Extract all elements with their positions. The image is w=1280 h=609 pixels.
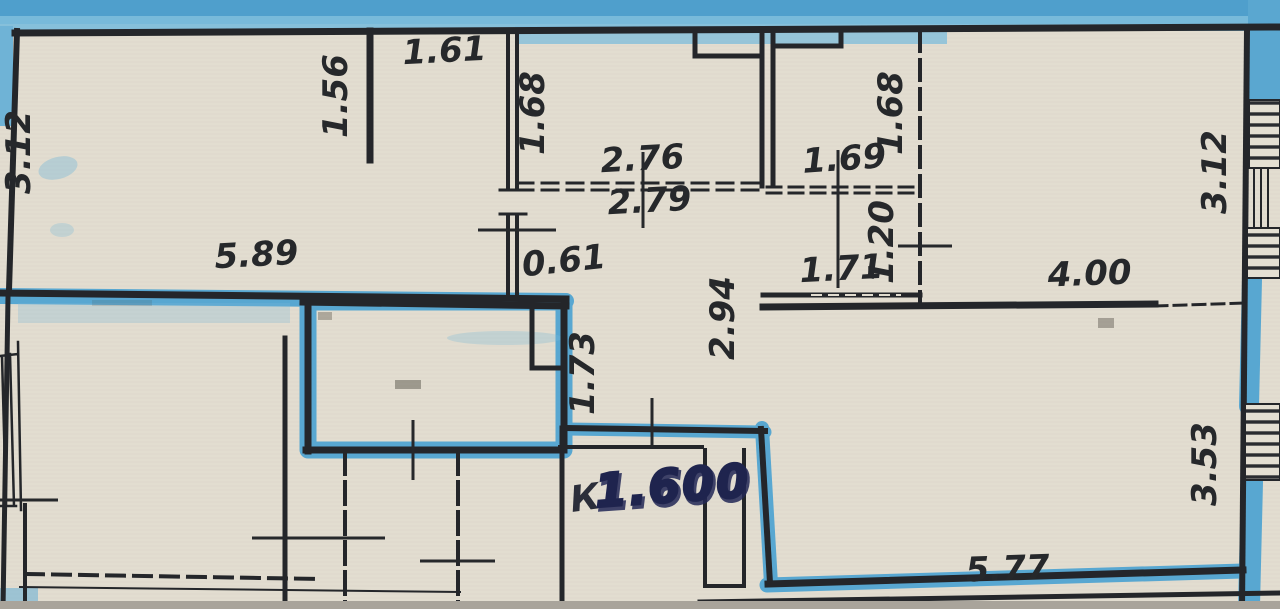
dim-closet-width: 1.61 xyxy=(401,29,487,73)
dim-top-left-height: 3.12 xyxy=(0,110,39,194)
stain-1 xyxy=(318,312,332,320)
highlight-smudge-3 xyxy=(447,331,563,345)
dim-closet-depth: 1.56 xyxy=(316,54,356,138)
highlight-right-bottom xyxy=(1249,482,1252,606)
dim-bottom-right-width: 5.77 xyxy=(965,548,1051,591)
stain-3 xyxy=(395,380,421,389)
dim-hall-left-height: 1.73 xyxy=(563,331,603,415)
dim-hall-height: 2.94 xyxy=(703,276,743,360)
dim-bedroom-height: 3.12 xyxy=(1195,130,1235,214)
floor-plan-drawing: 3.12 1.56 1.61 1.68 2.76 2.79 1.69 1.68 … xyxy=(0,0,1280,609)
highlight-right-mid xyxy=(1249,280,1252,406)
dim-mid-width-upper: 2.76 xyxy=(599,137,685,181)
wall-bedroom-bottom xyxy=(763,304,1155,307)
hatch-window-2 xyxy=(1247,228,1280,278)
dim-mid-width-lower: 2.79 xyxy=(606,179,692,223)
dim-mid-top-height: 1.68 xyxy=(513,71,553,155)
dim-right-small-height: 1.68 xyxy=(871,71,911,155)
stain-4 xyxy=(92,300,152,306)
dim-top-left-width: 5.89 xyxy=(213,233,299,277)
dim-bottom-right-height: 3.53 xyxy=(1185,422,1225,506)
hatch-window-3 xyxy=(1245,404,1280,480)
handwritten-annotation: К 1.600 1.600 xyxy=(568,453,754,521)
photo-edge-bottom xyxy=(0,601,1280,609)
dim-pantry-height: 1.20 xyxy=(862,200,902,284)
dim-bedroom-width: 4.00 xyxy=(1046,253,1132,296)
highlight-smudge-room xyxy=(18,303,290,323)
floor-plan-photo: 3.12 1.56 1.61 1.68 2.76 2.79 1.69 1.68 … xyxy=(0,0,1280,609)
annotation-value: 1.600 xyxy=(593,453,752,518)
wall-bath-top xyxy=(303,302,566,306)
hatch-window-1 xyxy=(1249,100,1280,168)
highlight-right-top xyxy=(1248,0,1280,104)
wall-hall-bottom xyxy=(566,428,765,431)
stain-2 xyxy=(1098,318,1114,328)
highlight-smudge-2 xyxy=(50,223,74,237)
